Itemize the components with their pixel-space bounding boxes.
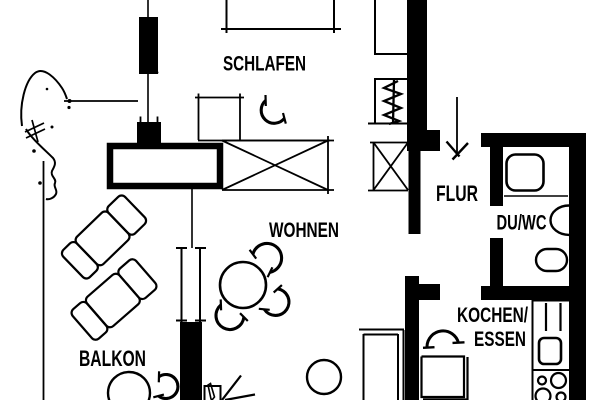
svg-text:DU/WC: DU/WC bbox=[497, 212, 547, 235]
svg-text:FLUR: FLUR bbox=[436, 181, 478, 206]
svg-text:ESSEN: ESSEN bbox=[474, 328, 526, 351]
svg-text:WOHNEN: WOHNEN bbox=[269, 219, 339, 242]
svg-text:BALKON: BALKON bbox=[79, 346, 146, 371]
svg-text:KOCHEN/: KOCHEN/ bbox=[457, 304, 528, 327]
svg-text:SCHLAFEN: SCHLAFEN bbox=[223, 53, 306, 76]
